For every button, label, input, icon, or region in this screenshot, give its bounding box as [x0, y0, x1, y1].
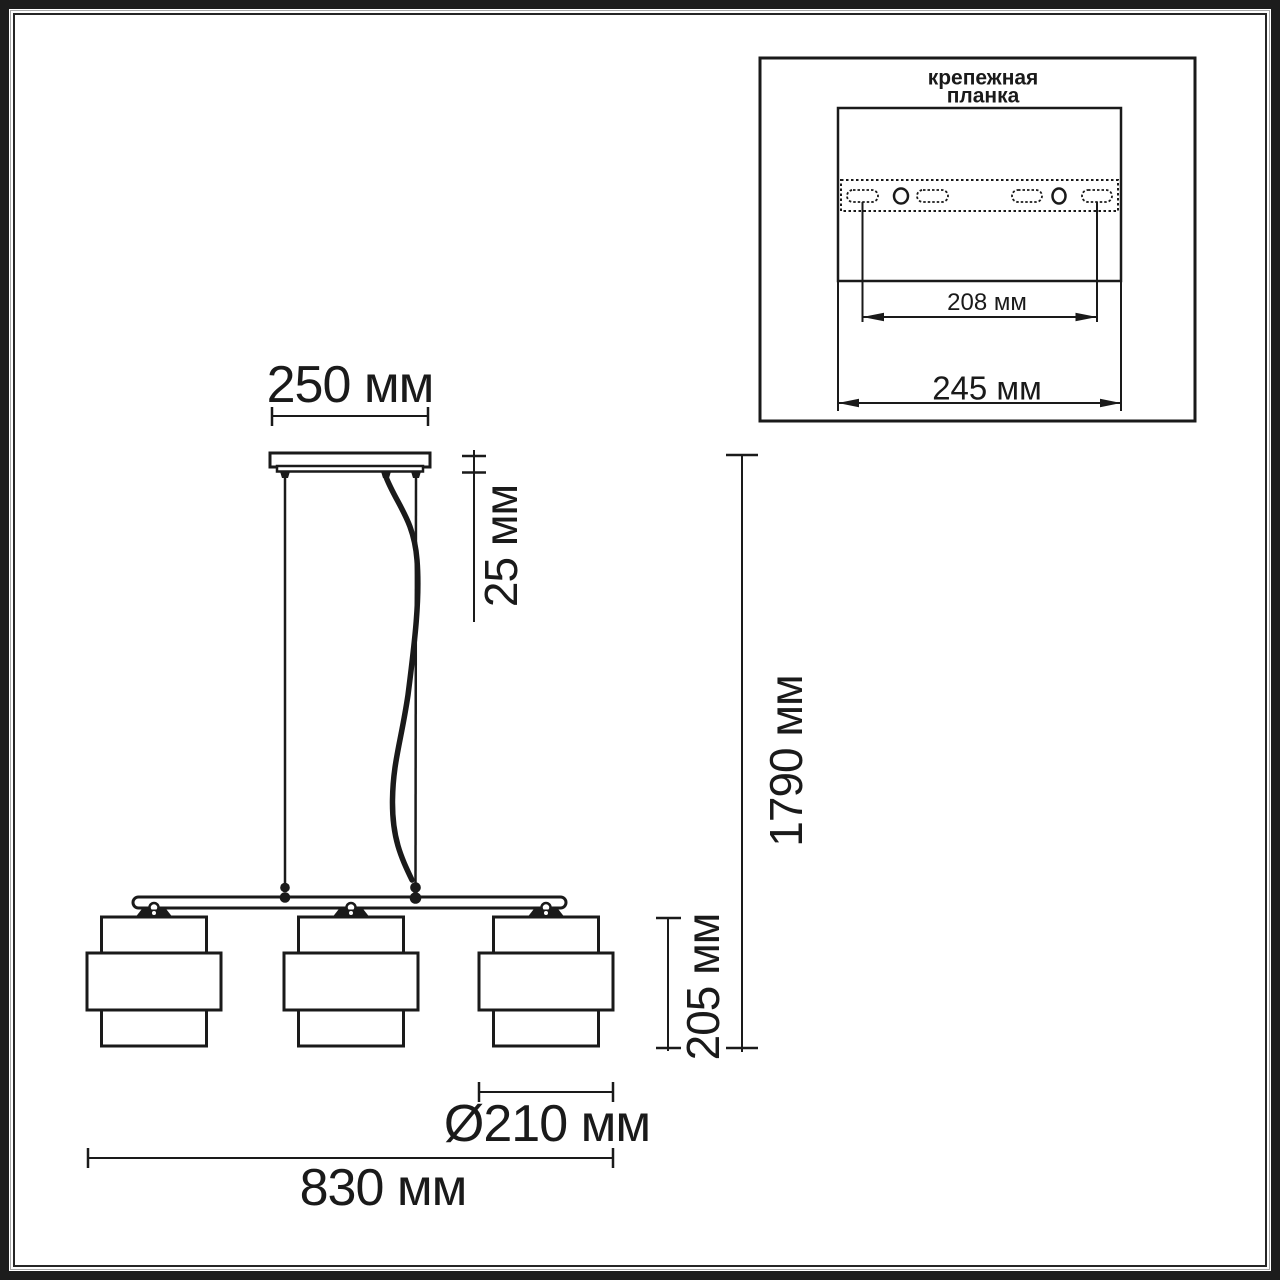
- label-canopy-width: 250 мм: [267, 359, 434, 411]
- label-shade-height: 205 мм: [680, 914, 726, 1061]
- canopy: [270, 453, 430, 478]
- lamp-shade: [87, 917, 221, 1046]
- lamp-shades: [87, 917, 613, 1046]
- mounting-plate-inset: [760, 58, 1195, 421]
- dimension-drawing-page: 250 мм 25 мм 1790 мм 205 мм Ø210 мм 830 …: [0, 0, 1280, 1280]
- lamp-shade: [479, 917, 613, 1046]
- label-total-width: 830 мм: [300, 1162, 467, 1214]
- inset-box: [760, 58, 1195, 421]
- label-plate-width: 245 мм: [932, 372, 1042, 405]
- mounting-plate: [838, 108, 1121, 281]
- label-hole-spacing: 208 мм: [947, 291, 1027, 315]
- lamp-shade: [284, 917, 418, 1046]
- suspension-cables: [285, 477, 418, 884]
- dim-total-height: [726, 455, 758, 1052]
- label-canopy-height: 25 мм: [478, 485, 524, 607]
- slot-holes: [847, 190, 1112, 202]
- label-shade-diameter: Ø210 мм: [444, 1098, 650, 1150]
- slot-strip: [841, 180, 1118, 211]
- lamp-line-art: [0, 0, 1280, 1280]
- inset-title-line2: планка: [947, 86, 1020, 107]
- label-total-height: 1790 мм: [763, 675, 809, 846]
- power-cord: [386, 477, 418, 880]
